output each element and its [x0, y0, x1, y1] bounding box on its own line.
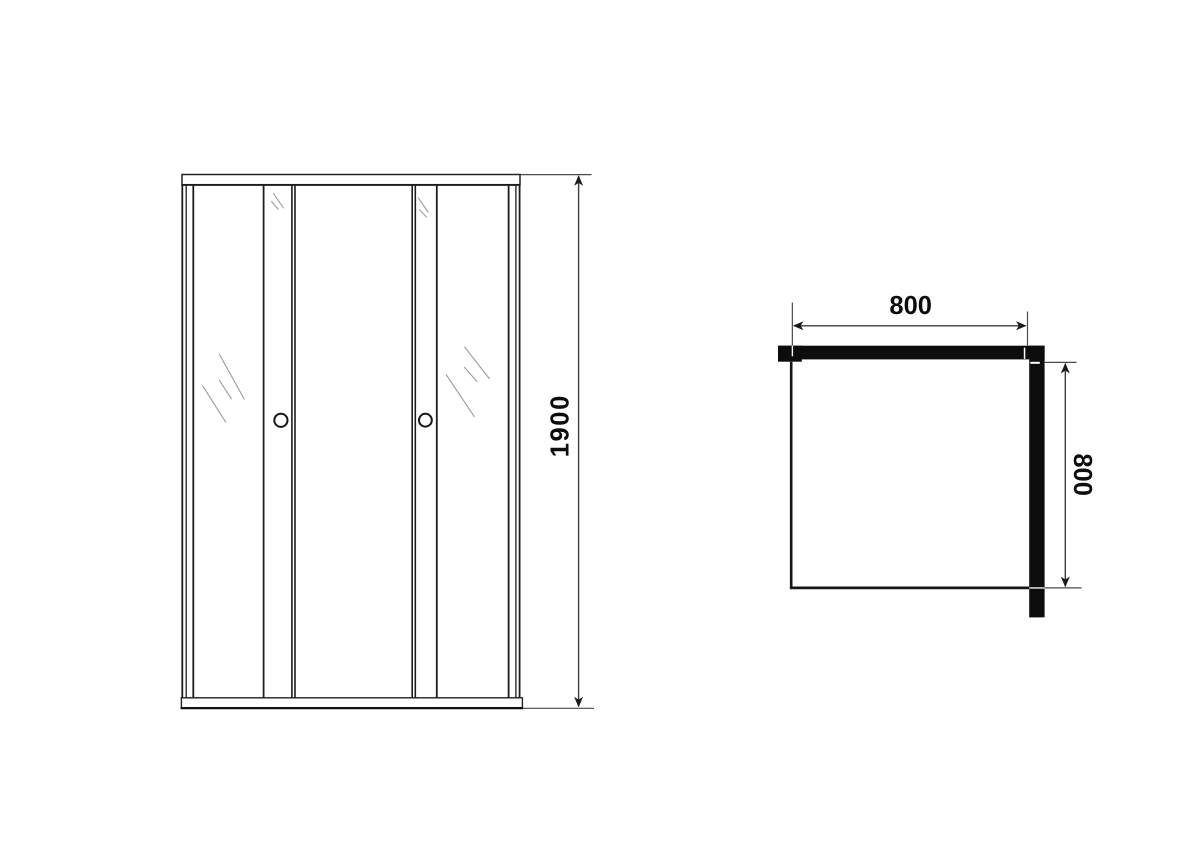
svg-text:800: 800	[889, 292, 932, 320]
svg-text:800: 800	[1068, 453, 1096, 496]
svg-text:1900: 1900	[547, 394, 575, 457]
